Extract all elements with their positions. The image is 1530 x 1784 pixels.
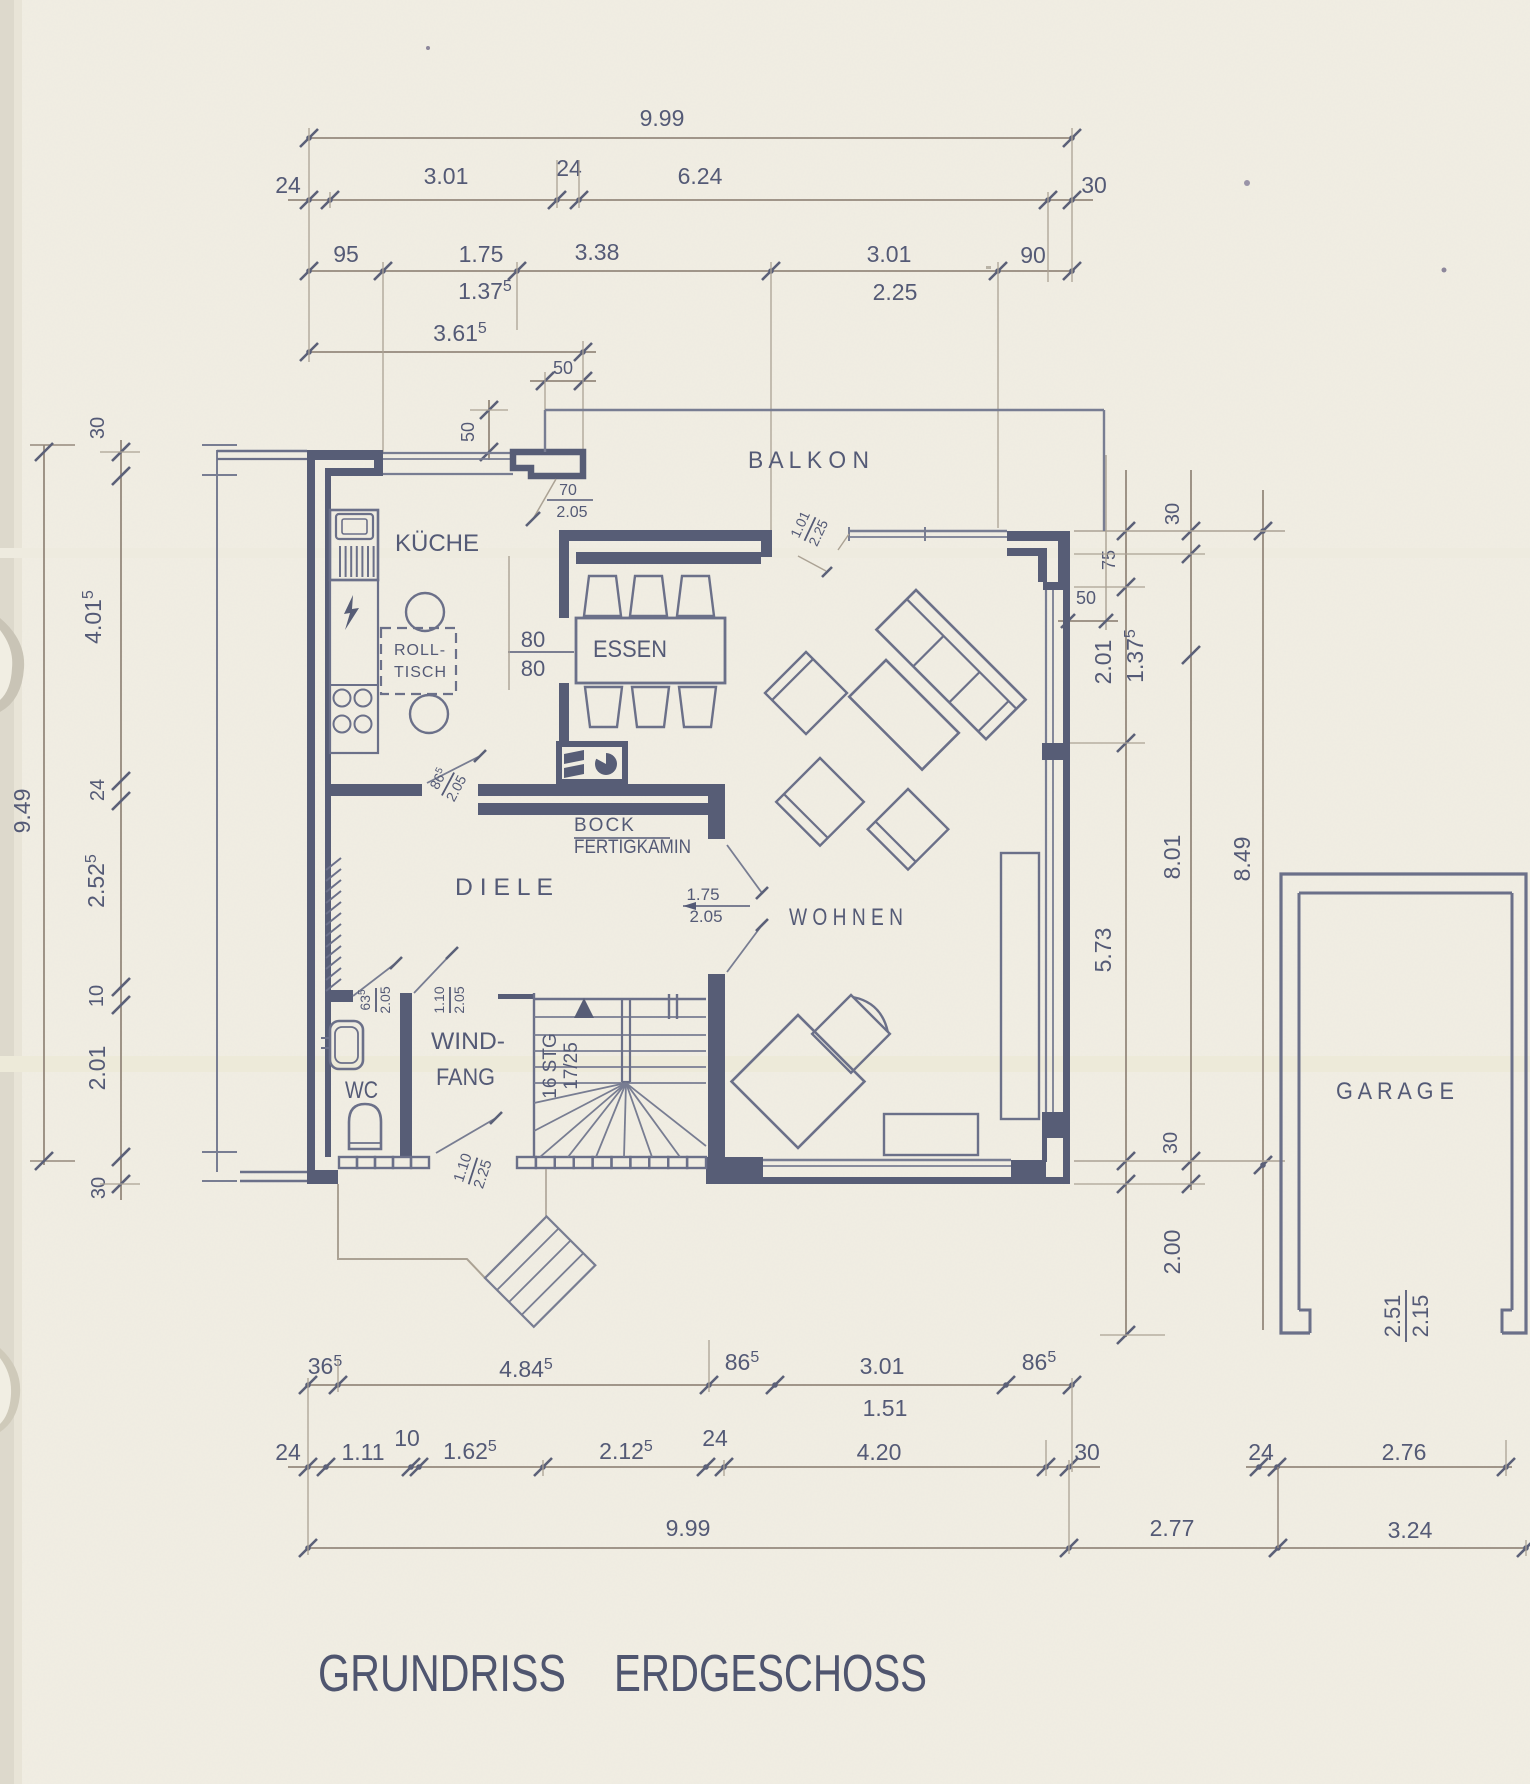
svg-text:4.20: 4.20 [857,1439,902,1465]
svg-text:GRUNDRISS: GRUNDRISS [318,1645,566,1703]
svg-text:50: 50 [1076,588,1096,608]
svg-text:1.51: 1.51 [863,1395,908,1421]
svg-text:10: 10 [86,985,108,1007]
svg-text:6.24: 6.24 [678,163,723,189]
svg-text:G A R A G E: G A R A G E [1336,1078,1454,1105]
svg-text:80: 80 [521,656,545,681]
svg-text:FERTIGKAMIN: FERTIGKAMIN [574,837,691,858]
svg-text:30: 30 [87,417,109,439]
svg-text:2.15: 2.15 [1408,1295,1433,1338]
svg-text:80: 80 [521,627,545,652]
svg-text:2.05: 2.05 [556,504,587,521]
svg-text:10: 10 [394,1425,420,1451]
svg-text:24: 24 [87,779,109,801]
svg-text:WC: WC [345,1077,378,1104]
svg-text:2.25: 2.25 [873,279,918,305]
svg-text:95: 95 [333,241,359,267]
svg-text:1.11: 1.11 [341,1439,384,1465]
svg-text:D I E L E: D I E L E [455,874,553,901]
svg-text:75: 75 [1099,550,1119,570]
svg-text:5.73: 5.73 [1090,928,1116,973]
svg-text:24: 24 [556,155,582,181]
svg-text:2.51: 2.51 [1380,1295,1405,1338]
svg-text:24: 24 [275,1439,301,1465]
svg-text:ROLL-: ROLL- [394,642,446,659]
svg-text:24: 24 [702,1425,728,1451]
svg-text:2.05: 2.05 [689,907,722,926]
svg-text:B A L K O N: B A L K O N [748,447,869,474]
svg-text:TISCH: TISCH [394,664,447,681]
svg-text:1.10: 1.10 [431,986,447,1013]
svg-text:9.99: 9.99 [640,105,685,131]
svg-text:8.49: 8.49 [1229,837,1255,882]
svg-text:16 STG: 16 STG [540,1033,561,1098]
svg-text:BOCK: BOCK [574,815,636,836]
svg-text:2.01: 2.01 [1090,640,1116,685]
svg-text:30: 30 [1160,1132,1182,1154]
svg-text:2.01: 2.01 [84,1046,110,1091]
svg-text:ESSEN: ESSEN [593,636,667,663]
svg-text:WIND-: WIND- [431,1028,505,1055]
svg-text:W O H N E N: W O H N E N [789,904,903,931]
svg-text:9.99: 9.99 [666,1515,711,1541]
svg-text:3.01: 3.01 [860,1353,905,1379]
svg-text:50: 50 [553,358,573,378]
svg-text:9.49: 9.49 [9,789,35,834]
svg-text:30: 30 [88,1177,110,1199]
svg-text:1.75: 1.75 [459,241,504,267]
svg-text:2.76: 2.76 [1382,1439,1427,1465]
svg-text:30: 30 [1074,1439,1100,1465]
svg-text:1.75: 1.75 [686,885,719,904]
svg-text:24: 24 [275,172,301,198]
svg-text:50: 50 [458,422,478,442]
svg-text:3.24: 3.24 [1388,1517,1433,1543]
svg-text:ERDGESCHOSS: ERDGESCHOSS [614,1645,927,1703]
svg-text:2.05: 2.05 [451,986,467,1013]
svg-text:3.38: 3.38 [575,239,620,265]
svg-text:8.01: 8.01 [1159,835,1185,880]
svg-text:30: 30 [1081,172,1107,198]
svg-text:2.05: 2.05 [377,986,393,1013]
svg-text:FANG: FANG [436,1064,495,1091]
svg-text:70: 70 [559,482,577,499]
svg-text:24: 24 [1248,1439,1274,1465]
svg-text:30: 30 [1162,503,1184,525]
svg-text:2.77: 2.77 [1150,1515,1195,1541]
svg-text:17/25: 17/25 [561,1042,582,1090]
svg-text:KÜCHE: KÜCHE [395,530,479,557]
svg-text:3.01: 3.01 [424,163,469,189]
svg-text:2.00: 2.00 [1159,1230,1185,1275]
svg-text:90: 90 [1020,242,1046,268]
svg-text:3.01: 3.01 [867,241,912,267]
